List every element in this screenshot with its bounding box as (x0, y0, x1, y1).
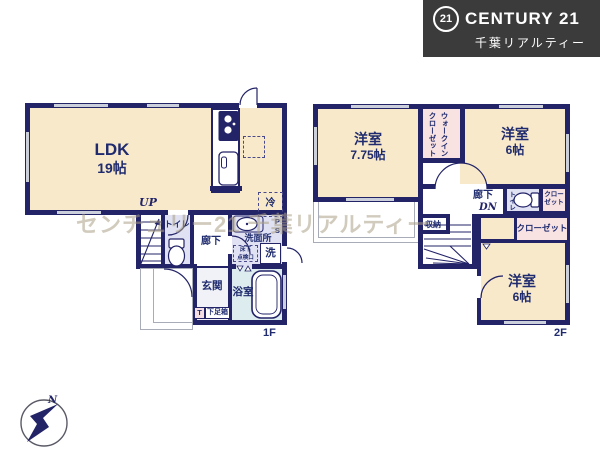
entrance-label: 玄関 (196, 280, 228, 292)
compass-icon: N (21, 395, 67, 446)
room-c-label: 洋室 6帖 (473, 273, 571, 304)
window (25, 131, 30, 183)
hatch-line2: 点検口 (234, 255, 257, 263)
door-opening (239, 103, 257, 108)
door-opening (282, 246, 287, 262)
washer-box: 洗 (260, 243, 281, 264)
wic-line1: ウォークイン (438, 109, 450, 159)
room-a-label: 洋室 7.75帖 (318, 131, 418, 162)
wall-segment (487, 184, 570, 189)
hall-label-1f: 廊下 (195, 236, 227, 248)
window (282, 274, 287, 310)
wic-label: ウォークイン クローゼット (426, 109, 450, 159)
toilet-label-1f: トイレ (162, 219, 192, 229)
closet-a-label: クロー ゼット (542, 191, 566, 206)
closet-a-line1: クロー (542, 191, 566, 199)
ps-label: PS (272, 217, 281, 235)
bath-label: 浴室 (230, 286, 256, 298)
floor2-label: 2F (554, 327, 567, 340)
window (498, 104, 544, 109)
room-b-name: 洋室 (466, 126, 564, 143)
brand-subtitle: 千葉リアルティー (433, 34, 592, 51)
shoe-box: 下足箱 (205, 307, 230, 319)
wall-segment (477, 214, 481, 325)
brand-name: CENTURY 21 (465, 9, 580, 29)
compass-north: N (47, 395, 58, 406)
wall-segment (418, 184, 435, 189)
porch-step (153, 268, 193, 323)
window (56, 210, 102, 215)
wic-line2: クローゼット (426, 109, 438, 159)
hatch-line1: 床下 (234, 247, 257, 255)
wall-segment (192, 320, 287, 325)
closet-b-label: クローゼット (516, 223, 568, 233)
floor-hatch: 床下 点検口 (233, 245, 258, 262)
room-b-size: 6帖 (466, 143, 564, 157)
wall-segment (228, 264, 236, 269)
entrance-step-line (196, 266, 228, 268)
ldk-label: LDK 19帖 (62, 140, 162, 177)
wall-segment (477, 239, 518, 243)
closet-a-line2: ゼット (542, 199, 566, 207)
room-c-name: 洋室 (473, 273, 571, 290)
ldk-size: 19帖 (62, 160, 162, 177)
window (345, 197, 395, 202)
kitchen-counter (211, 108, 240, 193)
shoe-t-box: T (194, 307, 205, 319)
brand-logo: 21 CENTURY 21 千葉リアルティー (423, 0, 600, 57)
room-a-size: 7.75帖 (318, 148, 418, 162)
storage-label: 収納 (420, 220, 446, 229)
century21-badge-icon: 21 (433, 6, 459, 32)
window (503, 320, 547, 325)
door-opening (435, 184, 487, 189)
kitchen-island-outline (243, 136, 265, 158)
window (53, 103, 109, 108)
wall-segment (136, 210, 141, 268)
balcony-inner-line (318, 200, 415, 238)
wall-segment (210, 186, 242, 191)
dn-label: DN (479, 202, 497, 214)
ldk-name: LDK (62, 140, 162, 160)
room-b-label: 洋室 6帖 (466, 126, 564, 157)
window (146, 103, 180, 108)
room-c-size: 6帖 (473, 290, 571, 304)
hall-label-2f: 廊下 (466, 190, 500, 202)
floor1-label: 1F (263, 327, 276, 340)
room-a-name: 洋室 (318, 131, 418, 148)
up-label: UP (139, 197, 157, 210)
wall-segment (252, 264, 287, 269)
wall-segment (460, 104, 465, 163)
floorplan-canvas: 21 CENTURY 21 千葉リアルティー 冷 LDK 19帖 (0, 0, 600, 450)
wall-segment (418, 230, 450, 234)
fridge-label: 冷 (258, 198, 283, 210)
window (565, 133, 570, 173)
window (350, 104, 410, 109)
door-opening (168, 210, 188, 215)
wall-segment (418, 264, 477, 269)
toilet-label-2f: トイレ (507, 190, 515, 211)
